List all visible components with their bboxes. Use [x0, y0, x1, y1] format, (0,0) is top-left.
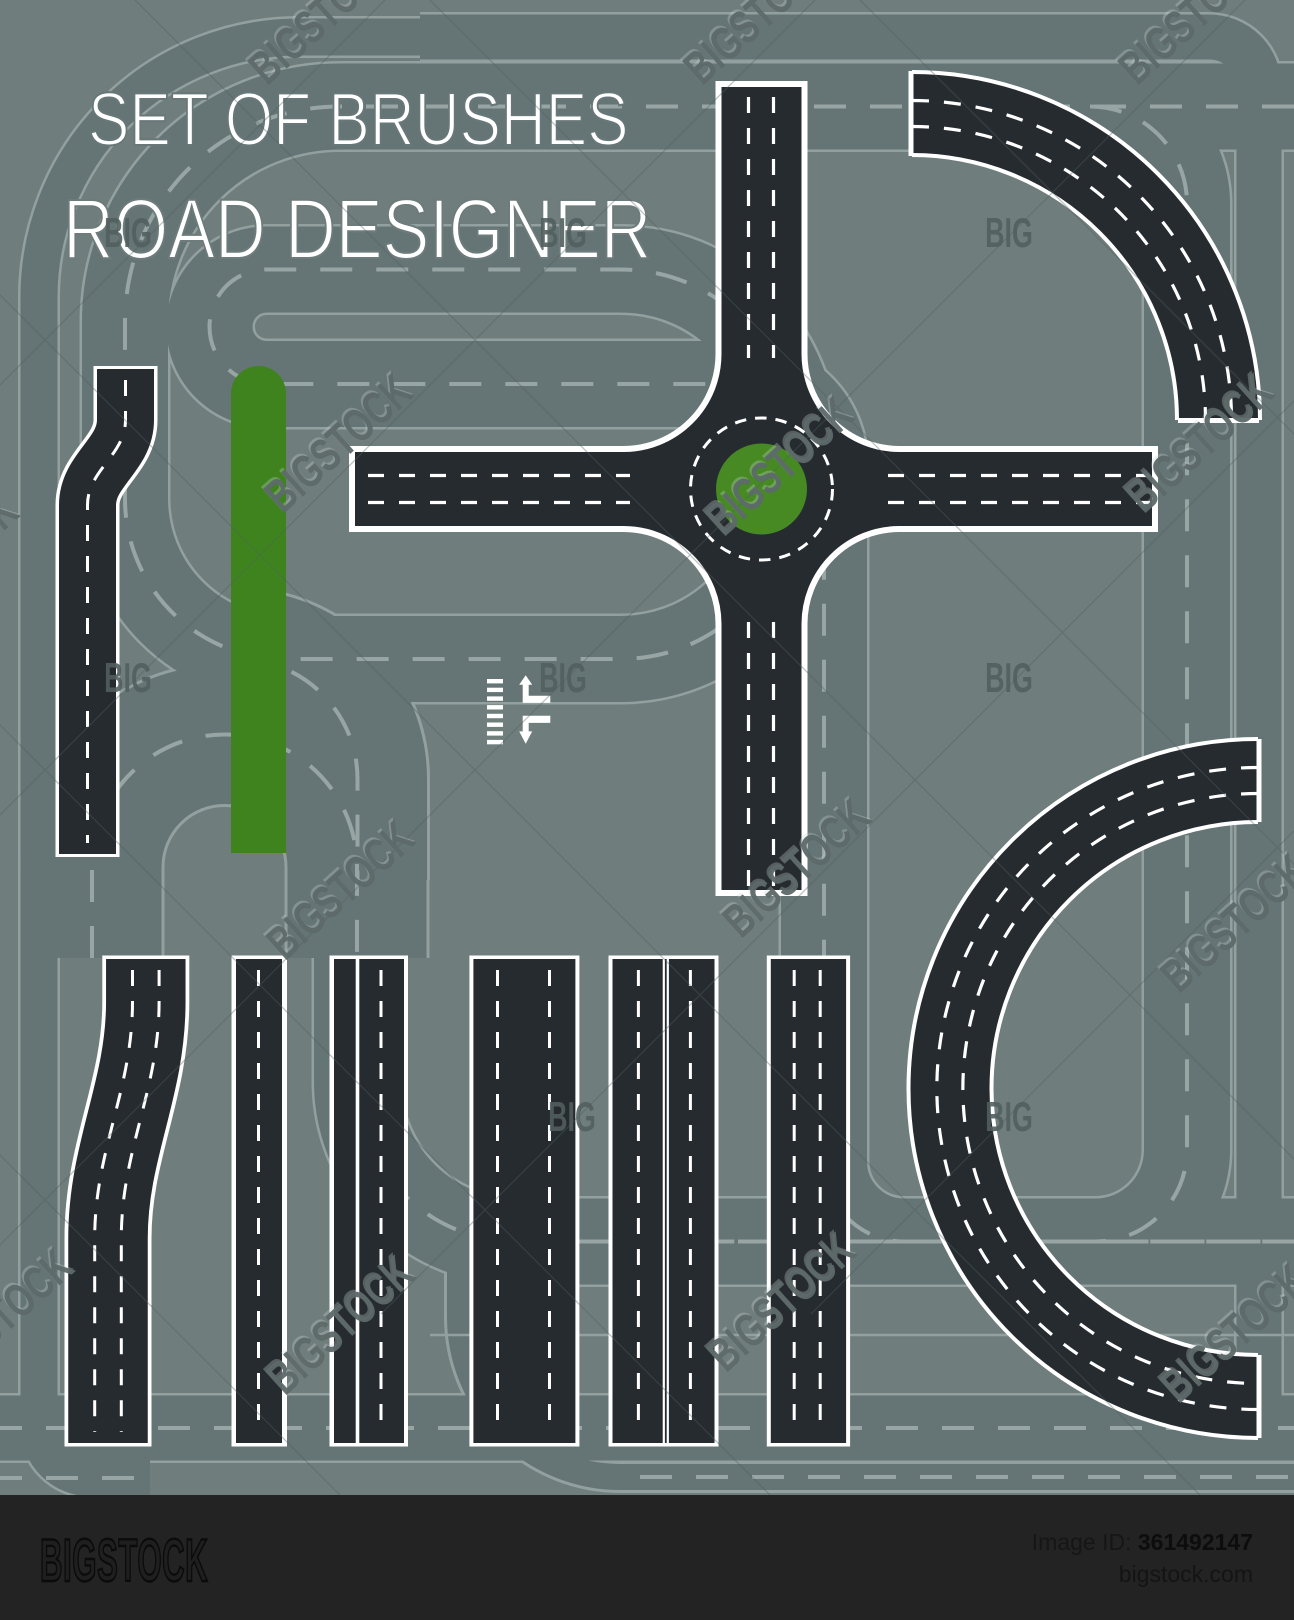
svg-text:BIG: BIG	[985, 655, 1033, 701]
svg-text:BIG: BIG	[539, 655, 587, 701]
svg-text:BIG: BIG	[985, 1094, 1033, 1140]
svg-text:bigstock.com: bigstock.com	[1119, 1561, 1253, 1587]
svg-text:BIGSTOCK: BIGSTOCK	[40, 1528, 208, 1594]
svg-text:BIG: BIG	[539, 210, 587, 256]
svg-text:BIG: BIG	[548, 1094, 596, 1140]
svg-text:BIG: BIG	[985, 210, 1033, 256]
svg-text:BIG: BIG	[104, 210, 152, 256]
svg-text:SET OF BRUSHES: SET OF BRUSHES	[88, 77, 629, 161]
svg-text:BIG: BIG	[104, 655, 152, 701]
svg-text:Image ID: 361492147: Image ID: 361492147	[1032, 1529, 1253, 1555]
